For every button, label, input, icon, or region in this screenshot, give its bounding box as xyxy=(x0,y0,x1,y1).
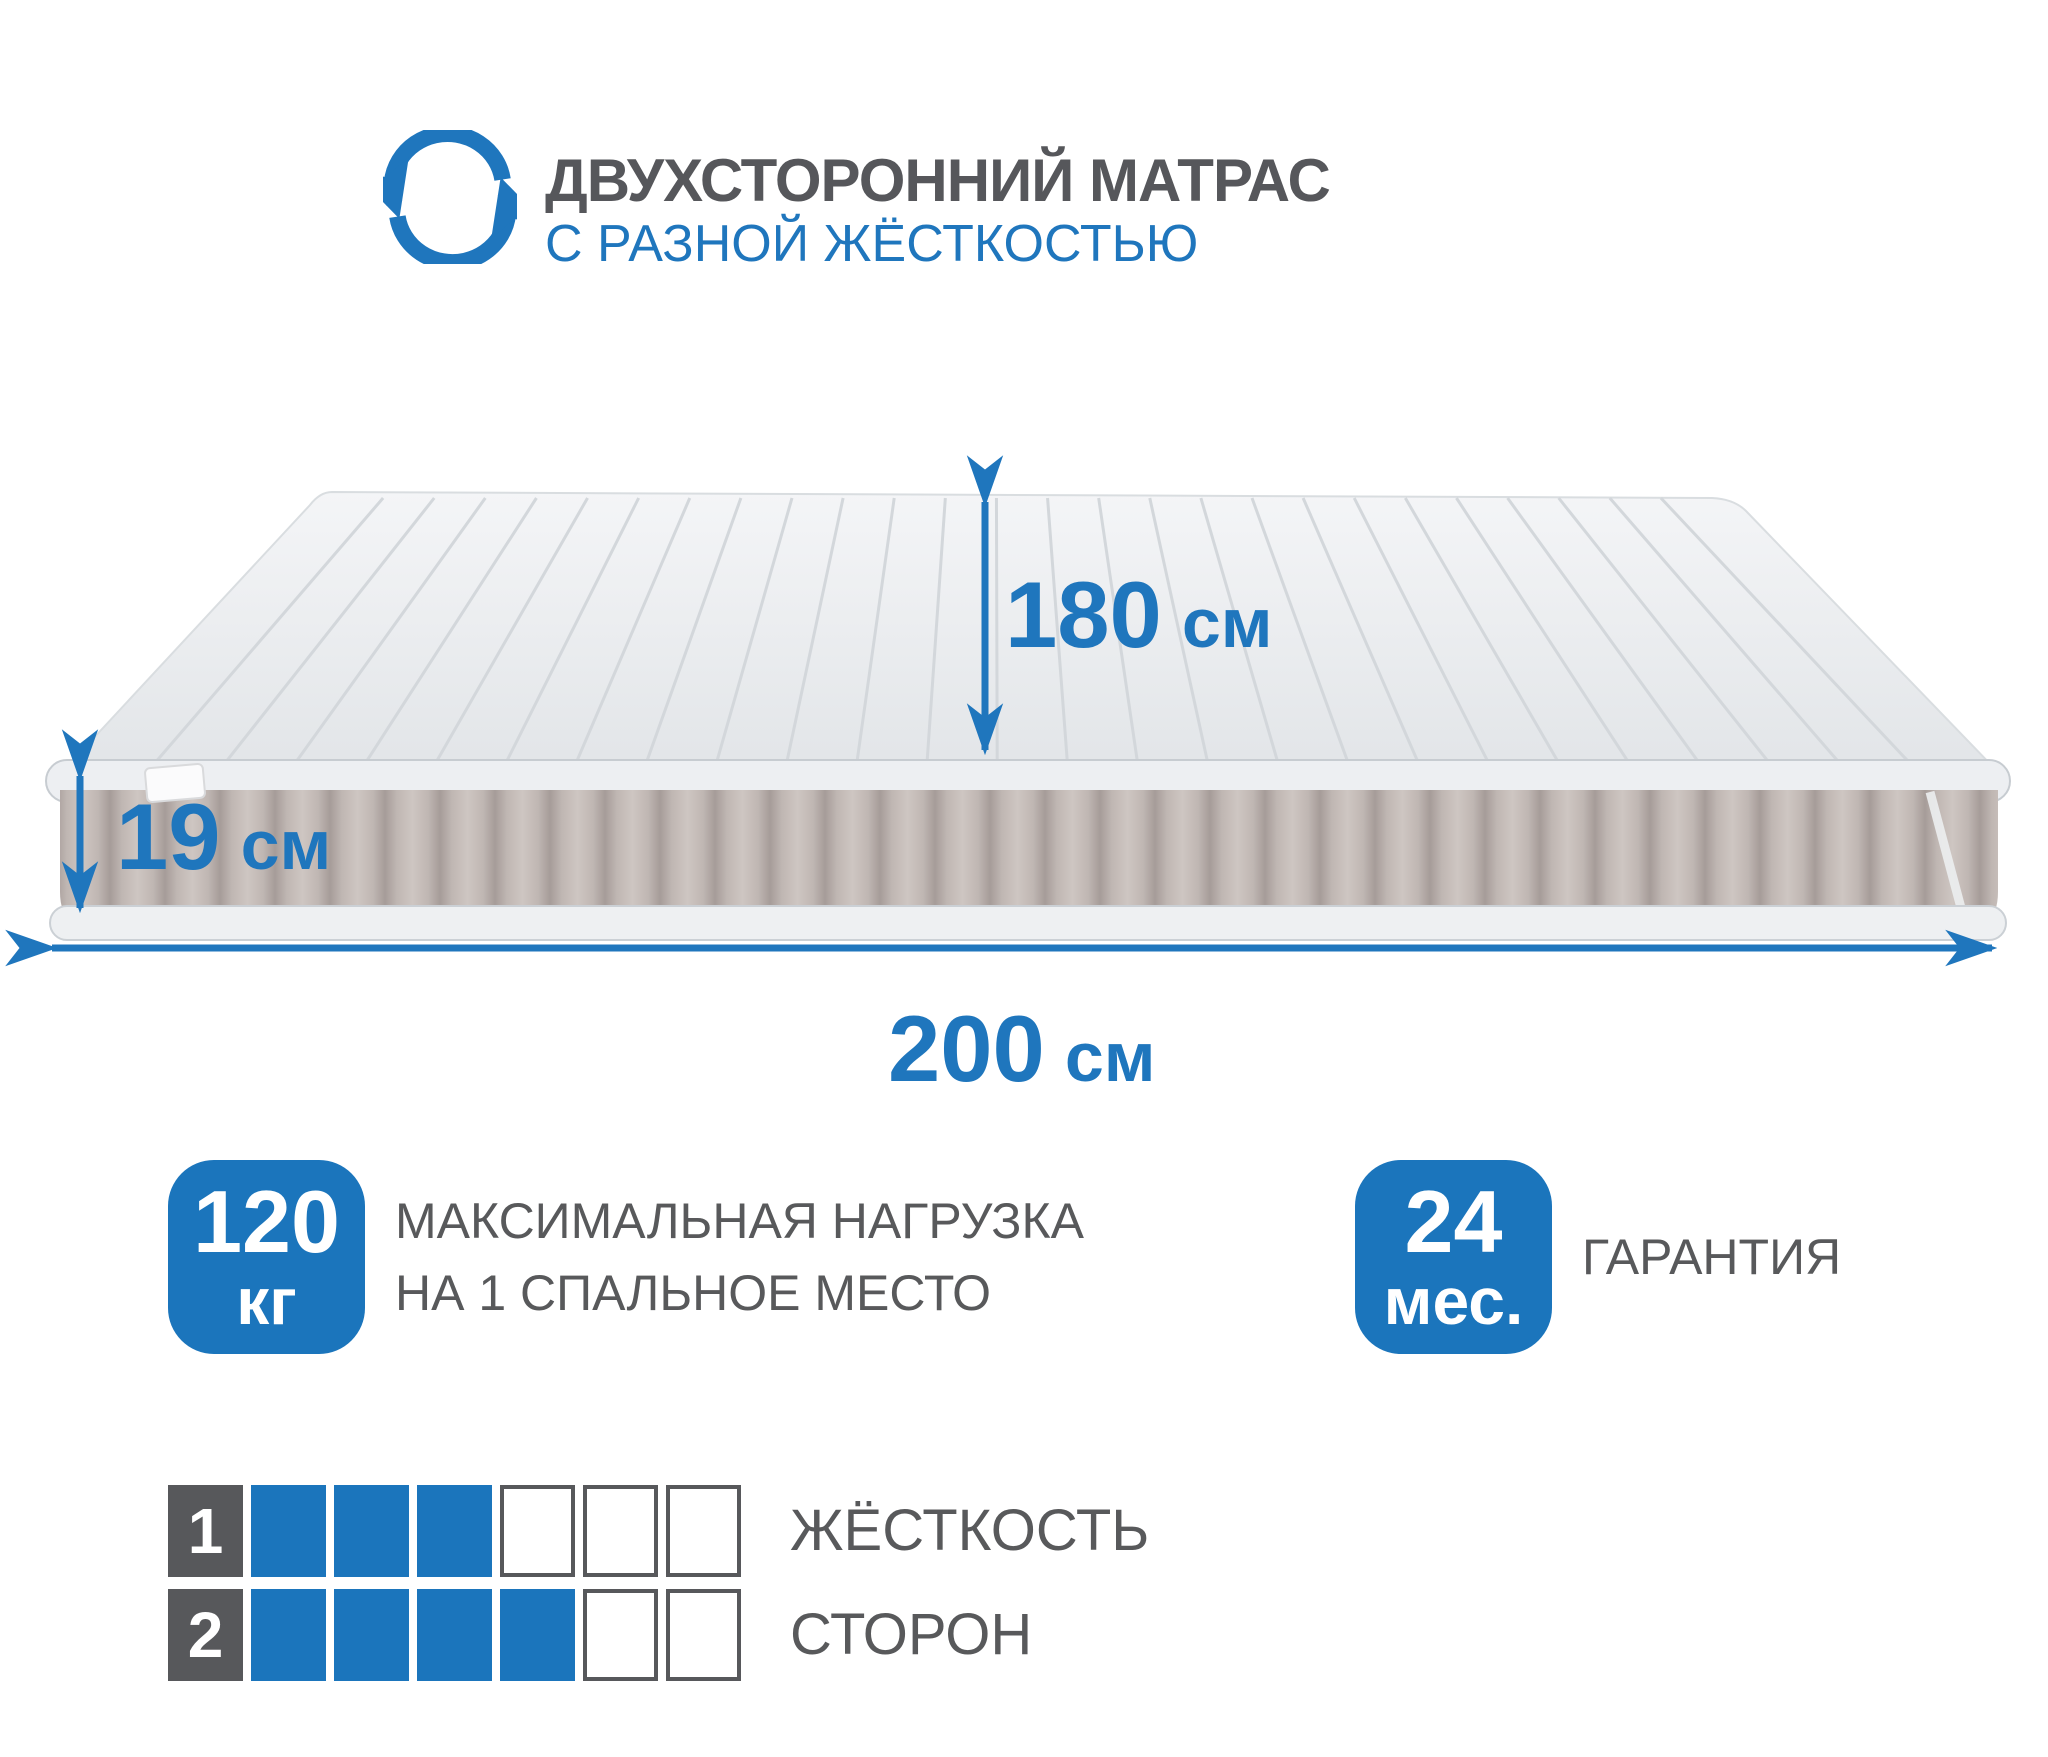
infographic-canvas: ДВУХСТОРОННИЙ МАТРАС С РАЗНОЙ ЖЁСТКОСТЬЮ xyxy=(0,0,2048,1757)
firmness-cell-filled xyxy=(334,1589,409,1681)
warranty-badge: 24 мес. xyxy=(1355,1160,1552,1354)
firmness-cell-filled xyxy=(251,1485,326,1577)
height-value: 19 xyxy=(116,784,221,889)
firmness-row-side2: 2 xyxy=(168,1589,741,1681)
warranty-label-line1: ГАРАНТИЯ xyxy=(1582,1221,1841,1293)
warranty-feature: 24 мес. ГАРАНТИЯ xyxy=(1355,1160,1841,1354)
firmness-cell-filled xyxy=(417,1485,492,1577)
firmness-cell-empty xyxy=(500,1485,575,1577)
length-dimension-label: 200см xyxy=(888,1002,1156,1096)
firmness-side-number: 2 xyxy=(168,1589,243,1681)
warranty-value: 24 xyxy=(1405,1180,1503,1264)
max-load-badge: 120 кг xyxy=(168,1160,365,1354)
width-unit: см xyxy=(1182,584,1273,662)
warranty-unit: мес. xyxy=(1384,1268,1524,1334)
max-load-label-line2: НА 1 СПАЛЬНОЕ МЕСТО xyxy=(395,1257,1084,1329)
warranty-label: ГАРАНТИЯ xyxy=(1582,1221,1841,1293)
length-value: 200 xyxy=(888,996,1045,1101)
height-unit: см xyxy=(241,806,332,884)
firmness-cell-empty xyxy=(583,1485,658,1577)
firmness-cell-filled xyxy=(417,1589,492,1681)
length-unit: см xyxy=(1065,1018,1156,1096)
firmness-label: ЖЁСТКОСТЬ СТОРОН xyxy=(790,1485,1149,1681)
width-dimension-label: 180см xyxy=(1005,568,1273,662)
max-load-label: МАКСИМАЛЬНАЯ НАГРУЗКА НА 1 СПАЛЬНОЕ МЕСТ… xyxy=(395,1185,1084,1329)
firmness-cell-empty xyxy=(666,1589,741,1681)
firmness-cell-empty xyxy=(666,1485,741,1577)
max-load-feature: 120 кг МАКСИМАЛЬНАЯ НАГРУЗКА НА 1 СПАЛЬН… xyxy=(168,1160,1084,1354)
firmness-cell-filled xyxy=(334,1485,409,1577)
mattress-bottom-piping xyxy=(50,906,2006,940)
firmness-cell-filled xyxy=(251,1589,326,1681)
width-value: 180 xyxy=(1005,562,1162,667)
max-load-value: 120 xyxy=(193,1180,340,1264)
firmness-row-side1: 1 xyxy=(168,1485,741,1577)
max-load-unit: кг xyxy=(236,1268,297,1334)
height-dimension-label: 19см xyxy=(116,790,331,884)
max-load-label-line1: МАКСИМАЛЬНАЯ НАГРУЗКА xyxy=(395,1185,1084,1257)
firmness-label-line2: СТОРОН xyxy=(790,1589,1149,1681)
firmness-label-line1: ЖЁСТКОСТЬ xyxy=(790,1485,1149,1577)
firmness-side-number: 1 xyxy=(168,1485,243,1577)
firmness-cell-empty xyxy=(583,1589,658,1681)
firmness-cell-filled xyxy=(500,1589,575,1681)
